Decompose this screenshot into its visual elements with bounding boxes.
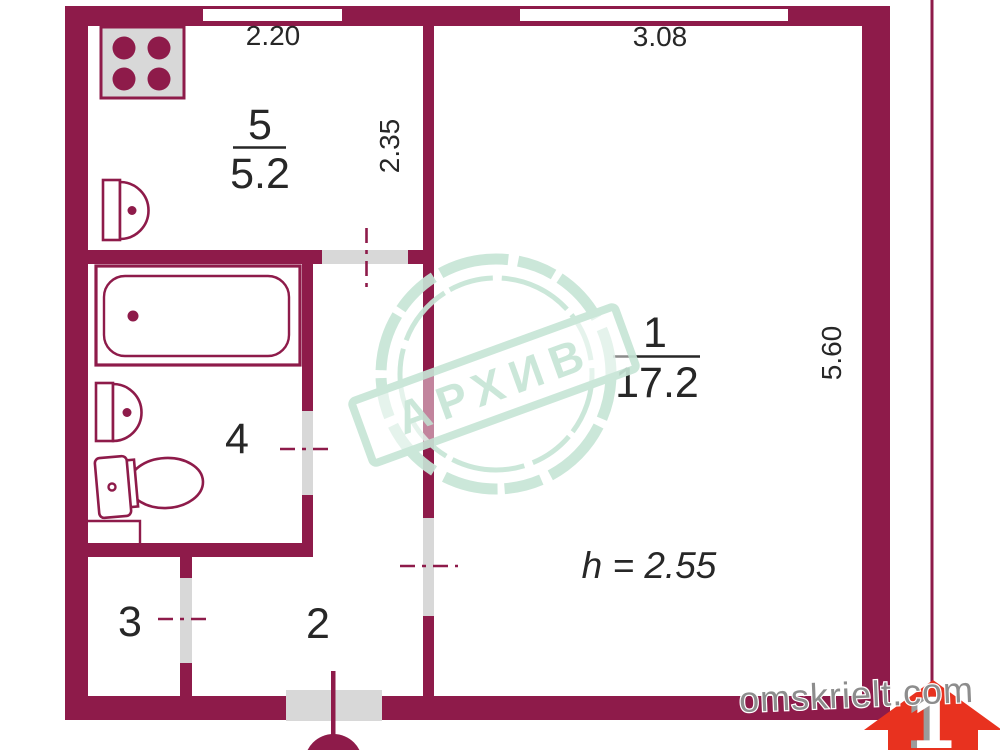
bathroom-sink-icon	[96, 383, 142, 441]
dimension-labels: 2.20 3.08 2.35 5.60 h = 2.55	[246, 20, 847, 586]
living-window	[520, 9, 788, 21]
kitchen-area: 5.2	[230, 150, 290, 198]
kitchen-sink-icon	[103, 180, 149, 240]
entrance-door-line	[331, 671, 336, 737]
site-logo: 1 1 omskrielt.com	[738, 669, 1000, 750]
kitchen-number: 5	[248, 101, 272, 149]
bathroom-right-wall-upper	[302, 264, 313, 411]
balcony-line	[931, 0, 934, 683]
closet-number: 3	[118, 598, 142, 646]
stamp-text: АРХИВ	[389, 326, 599, 445]
bathroom-number: 4	[225, 415, 249, 463]
archive-stamp-watermark: АРХИВ	[351, 259, 637, 489]
dim-living-depth: 5.60	[816, 326, 847, 381]
closet-door-opening	[180, 578, 192, 665]
kitchen-door-opening	[322, 250, 408, 264]
dim-living-width: 3.08	[633, 21, 688, 52]
bathroom-door-opening	[302, 411, 313, 495]
floor-plan: 2.20 3.08 2.35 5.60 h = 2.55 5 5.2 1 17.…	[0, 0, 1000, 750]
toilet-icon	[94, 456, 204, 519]
kitchen-bottom-wall-stub	[408, 250, 423, 264]
closet-wall-lower	[180, 663, 192, 696]
kitchen-bottom-wall	[88, 250, 322, 264]
stove-icon	[101, 27, 184, 98]
bathtub-icon	[96, 266, 300, 365]
living-number: 1	[643, 309, 667, 357]
closet-wall-upper	[180, 557, 192, 580]
bathroom-niche	[88, 521, 140, 543]
ceiling-height-label: h = 2.55	[582, 545, 717, 586]
bathroom-bottom-wall	[88, 543, 313, 557]
living-door-opening	[423, 518, 434, 617]
dim-kitchen-width: 2.20	[246, 20, 301, 51]
dim-kitchen-depth: 2.35	[374, 119, 405, 174]
hall-number: 2	[306, 600, 330, 648]
divider-wall-lower	[423, 616, 434, 696]
outer-wall-right	[862, 6, 890, 720]
entrance-door-knob	[305, 734, 363, 750]
outer-wall-left	[65, 6, 88, 720]
